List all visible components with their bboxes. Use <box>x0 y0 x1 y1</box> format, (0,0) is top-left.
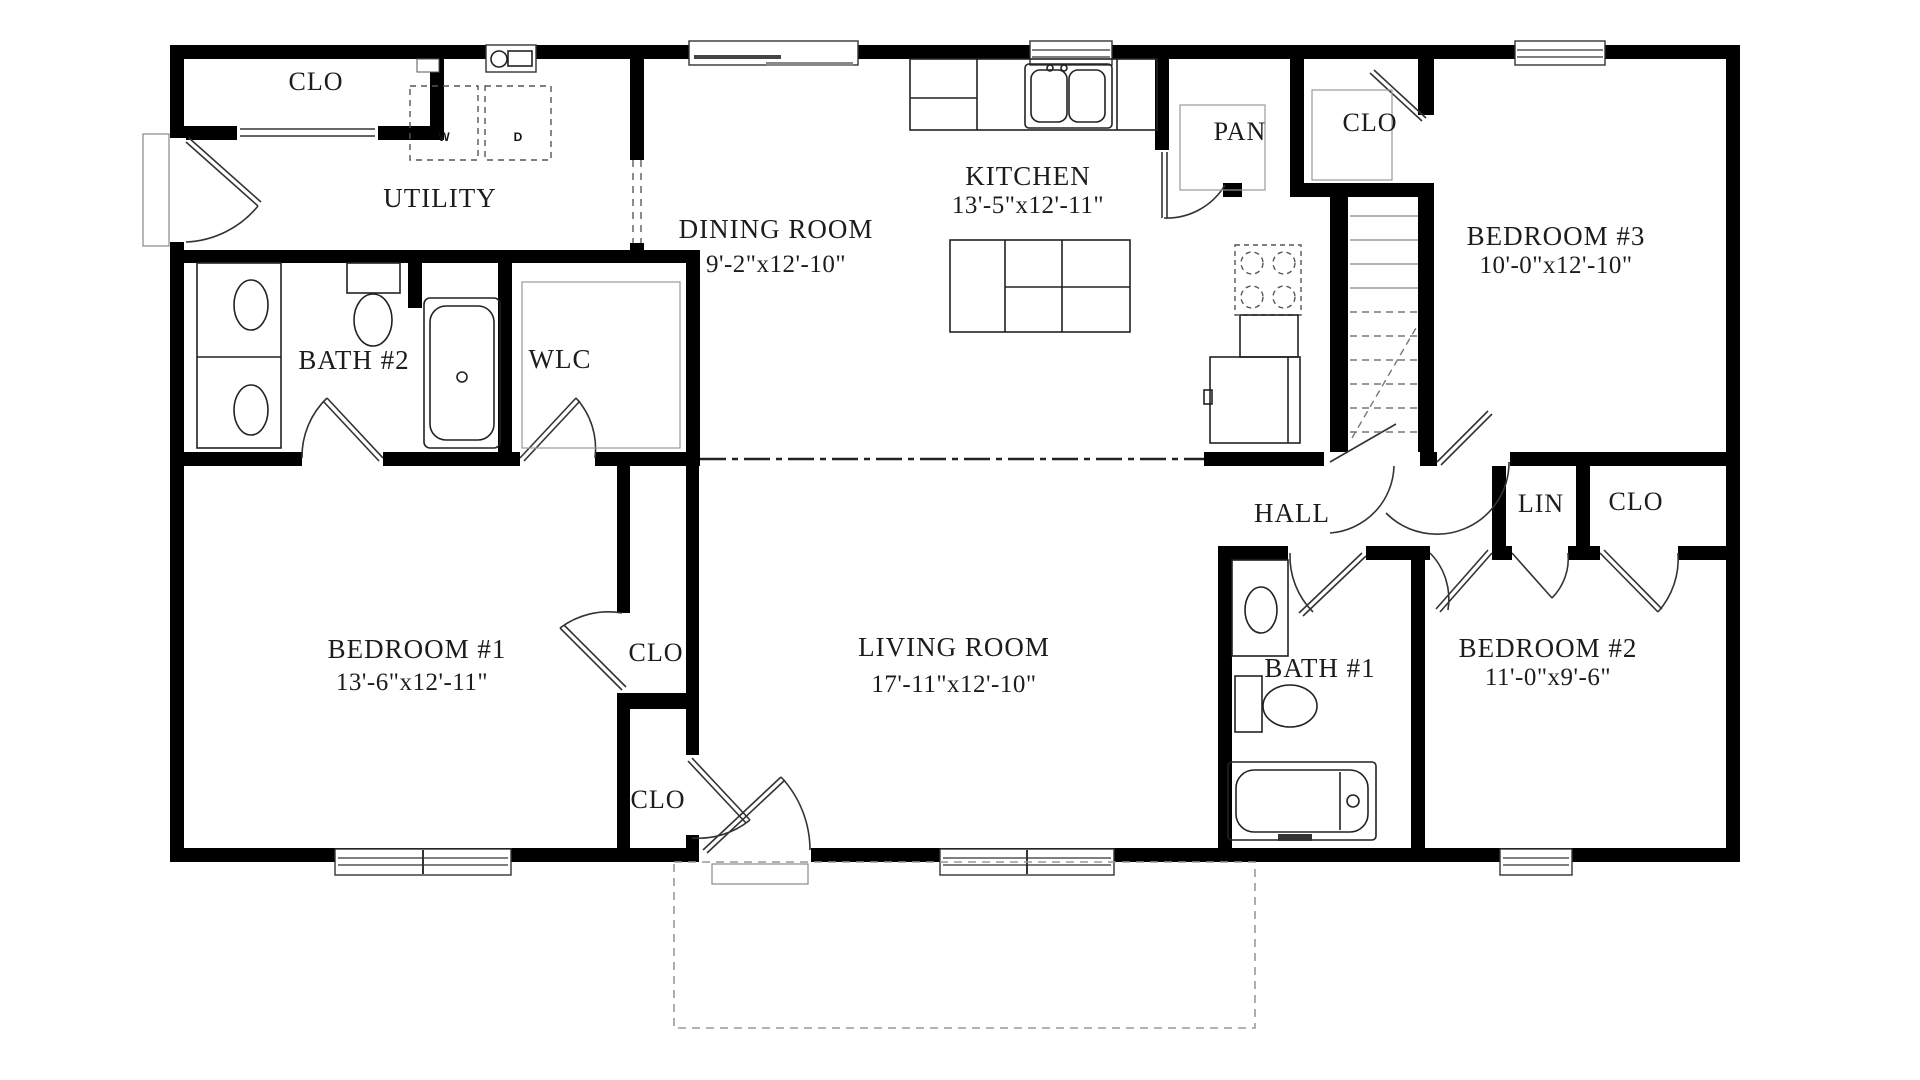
dryer-vent <box>486 45 536 72</box>
kitchen-label: KITCHEN <box>965 161 1090 191</box>
bedroom1-closet-lower-label: CLO <box>631 785 686 814</box>
floor-plan-page: CLO UTILITY W D DINING ROOM 9'-2"x12'-10… <box>0 0 1920 1080</box>
bedroom3-dims: 10'-0"x12'-10" <box>1479 252 1632 279</box>
bath1-toilet <box>1235 676 1317 732</box>
dining-label: DINING ROOM <box>679 214 874 244</box>
bedroom1-closet-upper-label: CLO <box>629 638 684 667</box>
bedroom3-closet-label: CLO <box>1343 108 1398 137</box>
washer-label: W <box>438 130 450 144</box>
dining-window <box>689 41 858 65</box>
bedroom1-dims: 13'-6"x12'-11" <box>336 669 488 696</box>
bedroom2-closet-label: CLO <box>1609 487 1664 516</box>
kitchen-window <box>1030 41 1112 65</box>
side-entry-door <box>143 134 261 246</box>
hall-label: HALL <box>1254 498 1330 528</box>
dining-dims: 9'-2"x12'-10" <box>706 251 846 278</box>
bedroom2-label: BEDROOM #2 <box>1459 633 1638 663</box>
bedroom3-door <box>1386 411 1509 534</box>
bedroom1-closet-lower-door <box>688 758 750 838</box>
bedroom3-window <box>1515 41 1605 65</box>
pantry-label: PAN <box>1214 117 1267 146</box>
utility-closet-label: CLO <box>289 67 344 96</box>
doors <box>143 70 1678 884</box>
bedroom1-closet-upper-door <box>560 612 626 690</box>
kitchen-sink <box>1025 64 1112 128</box>
bath1-vanity <box>1232 560 1288 656</box>
utility-closet-door <box>240 129 375 136</box>
bath2-label: BATH #2 <box>298 345 409 375</box>
bath2-vanity <box>197 263 281 448</box>
front-door-opening <box>699 846 811 864</box>
fixtures <box>197 59 1418 841</box>
porch-outline <box>674 862 1255 1028</box>
wlc-door <box>520 398 596 461</box>
side-entry-opening <box>168 138 186 242</box>
wall-notch <box>417 59 439 72</box>
interior-walls <box>184 59 1726 848</box>
bedroom1-label: BEDROOM #1 <box>328 634 507 664</box>
dryer-box <box>485 86 551 160</box>
kitchen-island <box>950 240 1130 332</box>
bedroom2-dims: 11'-0"x9'-6" <box>1485 664 1611 691</box>
wlc-label: WLC <box>529 344 592 374</box>
labels: CLO UTILITY W D DINING ROOM 9'-2"x12'-10… <box>289 67 1664 814</box>
linen-label: LIN <box>1518 489 1564 518</box>
living-label: LIVING ROOM <box>858 632 1050 662</box>
bath1-tub <box>1228 762 1376 841</box>
utility-dining-opening <box>633 160 641 243</box>
refrigerator <box>1204 357 1300 443</box>
bedroom3-label: BEDROOM #3 <box>1467 221 1646 251</box>
linen-door <box>1512 553 1568 598</box>
bath2-tub <box>424 298 500 448</box>
floor-plan: CLO UTILITY W D DINING ROOM 9'-2"x12'-10… <box>0 0 1920 1080</box>
living-dims: 17'-11"x12'-10" <box>871 671 1036 698</box>
bedroom2-door <box>1430 550 1492 612</box>
bath2-door <box>302 398 383 461</box>
bath1-tub-drain <box>1278 834 1312 841</box>
bath1-door <box>1290 553 1366 616</box>
bedroom1-window <box>335 849 511 875</box>
kitchen-dims: 13'-5"x12'-11" <box>952 192 1104 219</box>
pantry-door <box>1162 152 1225 218</box>
bedroom2-closet-door <box>1600 550 1678 612</box>
kitchen-base-cabinet <box>1240 315 1298 357</box>
stairs <box>1350 216 1418 438</box>
bath2-toilet <box>347 263 400 346</box>
bedroom2-window <box>1500 849 1572 875</box>
utility-label: UTILITY <box>383 183 496 213</box>
dryer-label: D <box>514 130 523 144</box>
stove <box>1235 245 1301 315</box>
bath1-label: BATH #1 <box>1264 653 1375 683</box>
